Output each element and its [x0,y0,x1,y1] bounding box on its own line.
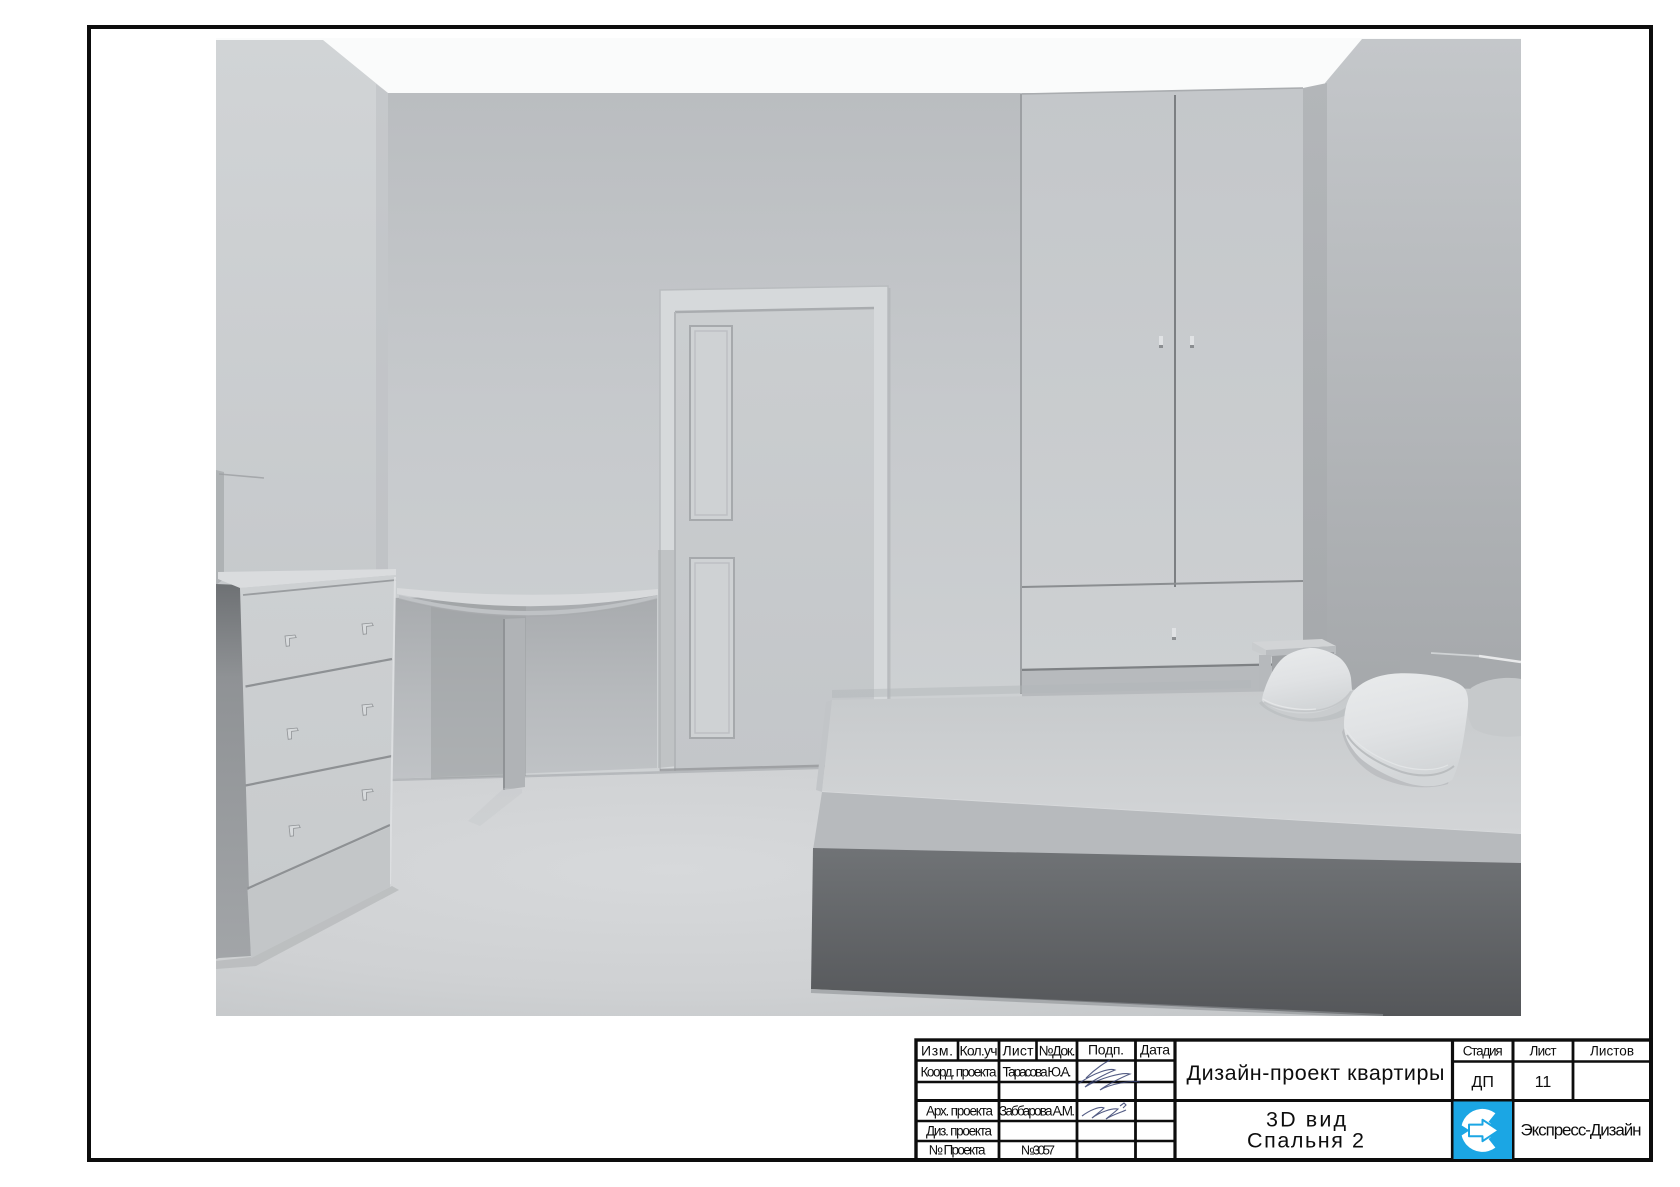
svg-text:Листов: Листов [1590,1044,1634,1059]
svg-text:Дата: Дата [1140,1042,1170,1058]
svg-text:11: 11 [1535,1074,1552,1091]
svg-text:Спальня 2: Спальня 2 [1247,1129,1364,1153]
svg-text:Заббарова А.М.: Заббарова А.М. [999,1104,1075,1119]
svg-text:№3057: №3057 [1021,1143,1055,1158]
svg-text:Кол.уч: Кол.уч [960,1043,998,1059]
svg-text:Дизайн-проект квартиры: Дизайн-проект квартиры [1187,1061,1445,1085]
svg-text:ДП: ДП [1472,1074,1494,1091]
svg-text:Тарасова Ю.А.: Тарасова Ю.А. [1003,1065,1072,1080]
svg-text:Экспресс-Дизайн: Экспресс-Дизайн [1521,1121,1642,1140]
svg-text:Диз. проекта: Диз. проекта [926,1124,992,1139]
svg-text:Лист: Лист [1530,1044,1557,1059]
svg-text:Коорд. проекта: Коорд. проекта [921,1065,997,1080]
svg-text:Стадия: Стадия [1463,1044,1503,1059]
svg-text:Лист: Лист [1003,1043,1035,1059]
svg-text:№Док.: №Док. [1039,1043,1076,1059]
svg-text:Изм.: Изм. [921,1043,953,1059]
svg-text:№ Проекта: № Проекта [929,1143,986,1158]
svg-text:Арх. проекта: Арх. проекта [926,1104,993,1119]
svg-text:Подп.: Подп. [1088,1042,1124,1058]
